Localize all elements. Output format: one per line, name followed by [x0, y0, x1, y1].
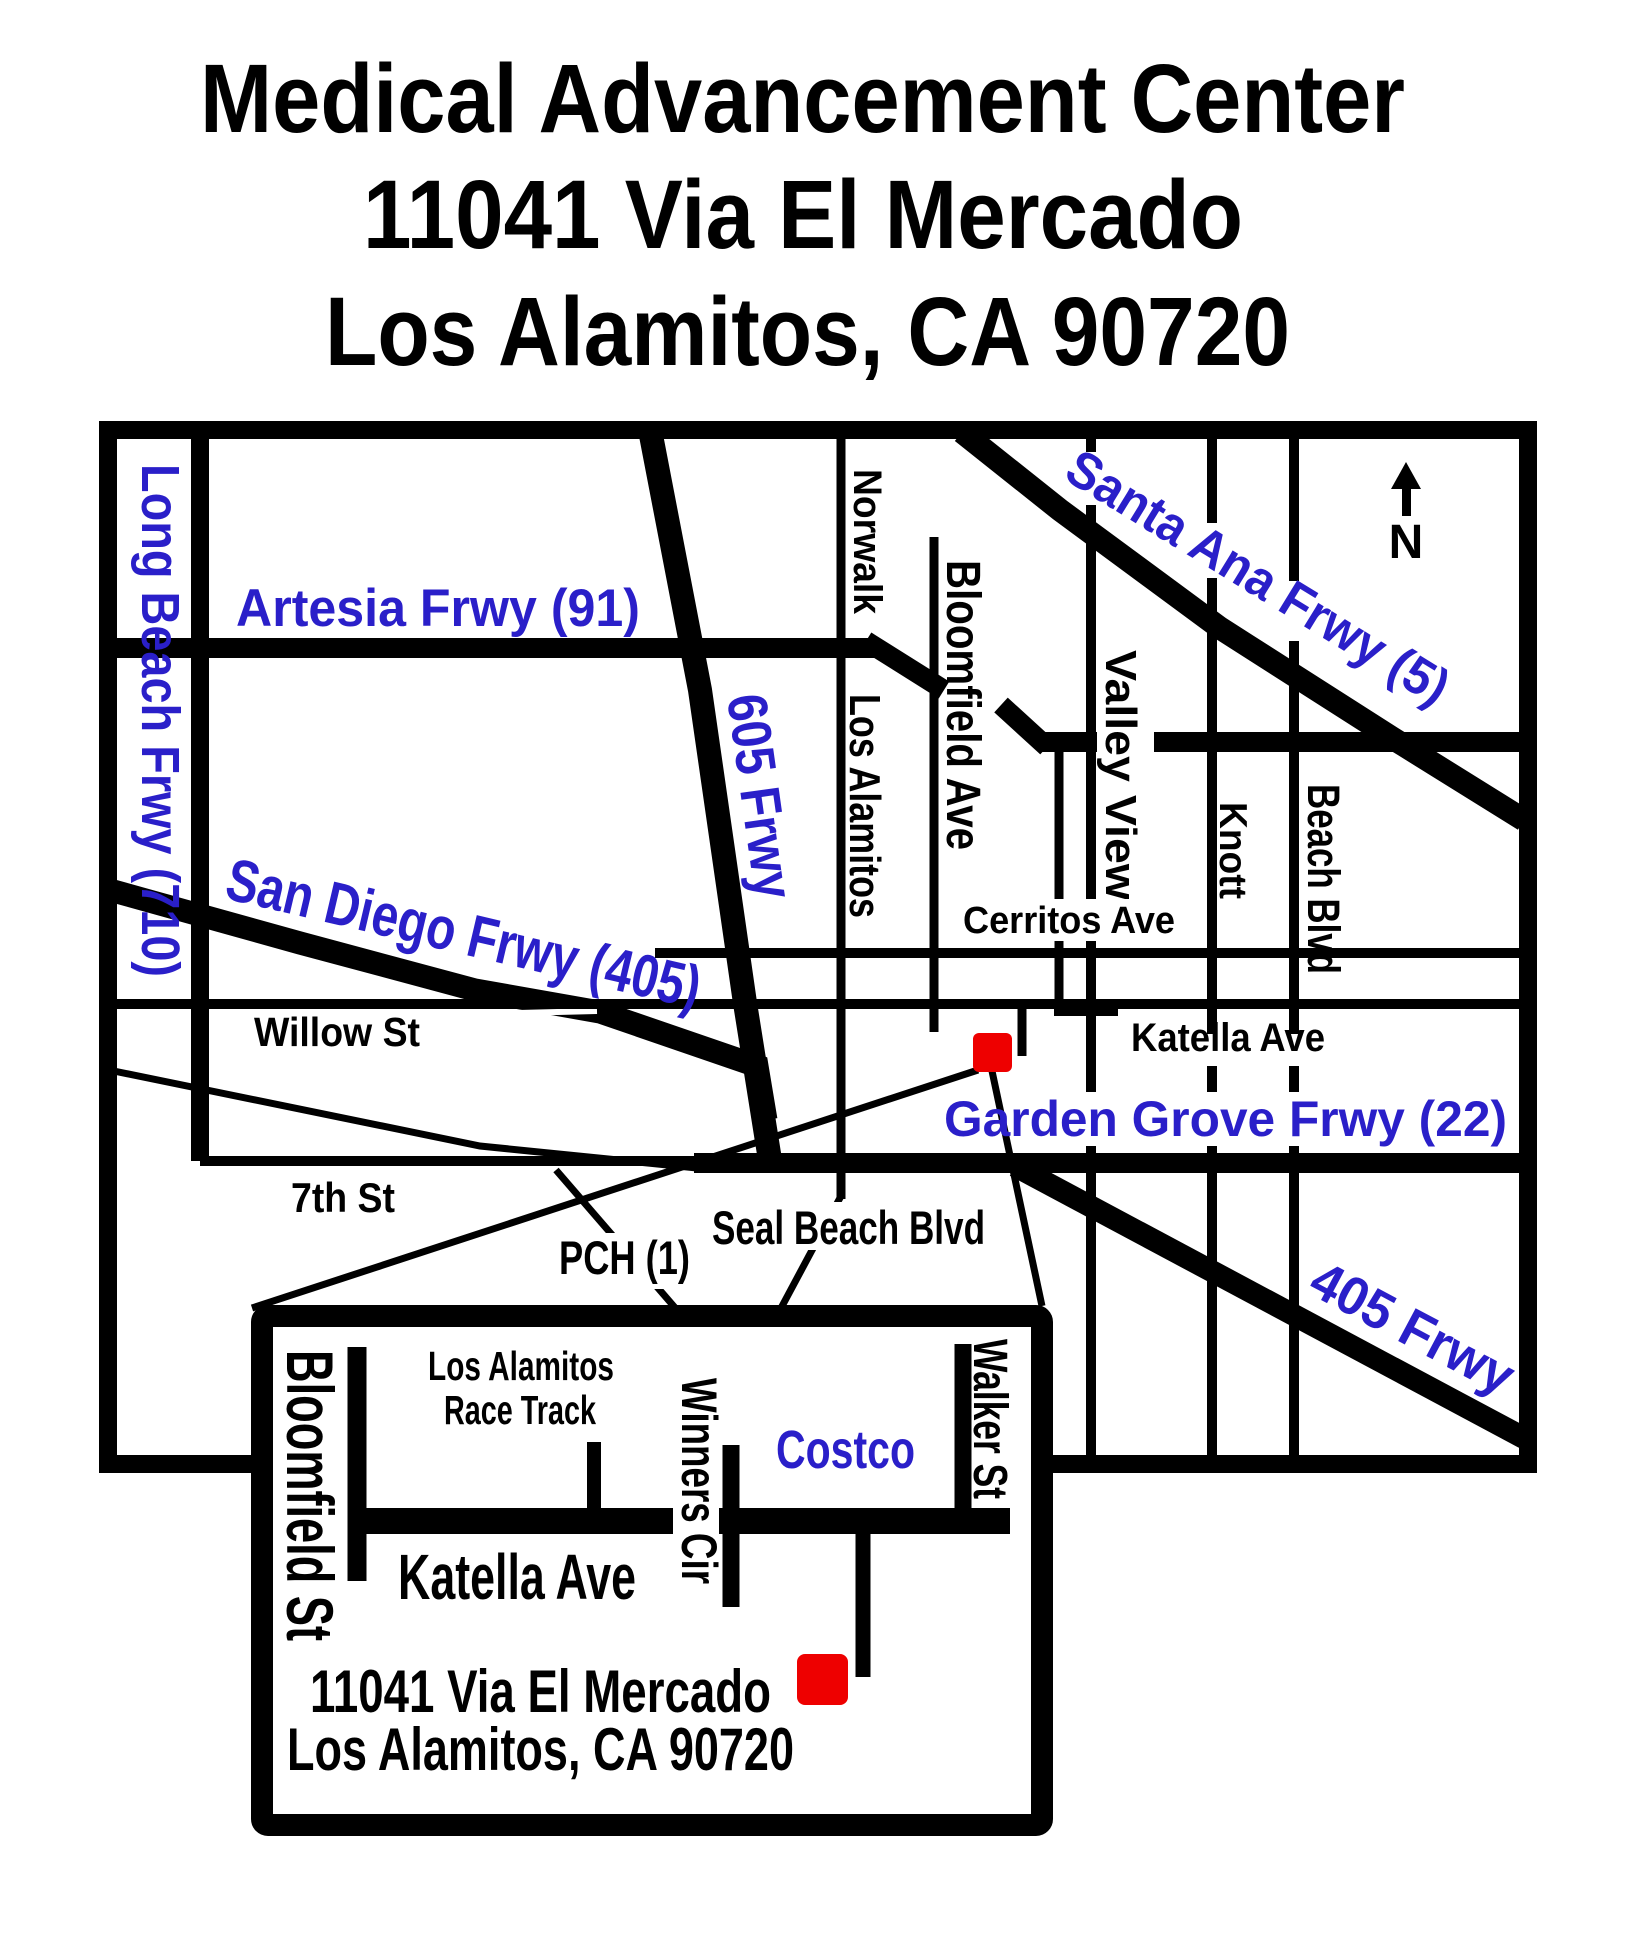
svg-text:Artesia Frwy (91): Artesia Frwy (91): [236, 579, 640, 638]
svg-text:11041 Via El Mercado: 11041 Via El Mercado: [310, 1658, 771, 1725]
svg-text:Katella Ave: Katella Ave: [1131, 1016, 1325, 1060]
svg-text:Beach Blvd: Beach Blvd: [1298, 784, 1349, 974]
svg-text:Walker St: Walker St: [963, 1339, 1016, 1499]
svg-text:Katella Ave: Katella Ave: [398, 1541, 636, 1613]
svg-text:Winners Cir: Winners Cir: [671, 1378, 727, 1584]
svg-text:Bloomfield Ave: Bloomfield Ave: [936, 560, 989, 850]
svg-text:11041 Via El Mercado: 11041 Via El Mercado: [363, 160, 1243, 269]
svg-text:Los Alamitos, CA 90720: Los Alamitos, CA 90720: [287, 1716, 794, 1783]
svg-text:Bloomfield St: Bloomfield St: [273, 1350, 347, 1641]
svg-text:Norwalk: Norwalk: [845, 469, 889, 615]
svg-text:Long Beach Frwy (710): Long Beach Frwy (710): [130, 464, 190, 977]
svg-text:Costco: Costco: [776, 1420, 915, 1480]
svg-text:Seal Beach Blvd: Seal Beach Blvd: [712, 1201, 985, 1254]
svg-text:Cerritos Ave: Cerritos Ave: [963, 900, 1175, 942]
svg-text:Los Alamitos: Los Alamitos: [840, 694, 889, 918]
svg-text:Race Track: Race Track: [444, 1387, 596, 1433]
svg-text:Los Alamitos, CA 90720: Los Alamitos, CA 90720: [325, 277, 1290, 386]
svg-text:Los Alamitos: Los Alamitos: [428, 1343, 614, 1389]
svg-text:N: N: [1389, 516, 1424, 569]
svg-text:Willow St: Willow St: [254, 1009, 420, 1055]
svg-text:Knott: Knott: [1211, 802, 1254, 899]
svg-text:Garden Grove Frwy (22): Garden Grove Frwy (22): [944, 1091, 1507, 1147]
svg-text:7th St: 7th St: [291, 1174, 395, 1221]
svg-text:Medical Advancement Center: Medical Advancement Center: [200, 44, 1405, 153]
svg-text:PCH (1): PCH (1): [559, 1231, 690, 1284]
svg-text:Valley View: Valley View: [1096, 650, 1145, 901]
